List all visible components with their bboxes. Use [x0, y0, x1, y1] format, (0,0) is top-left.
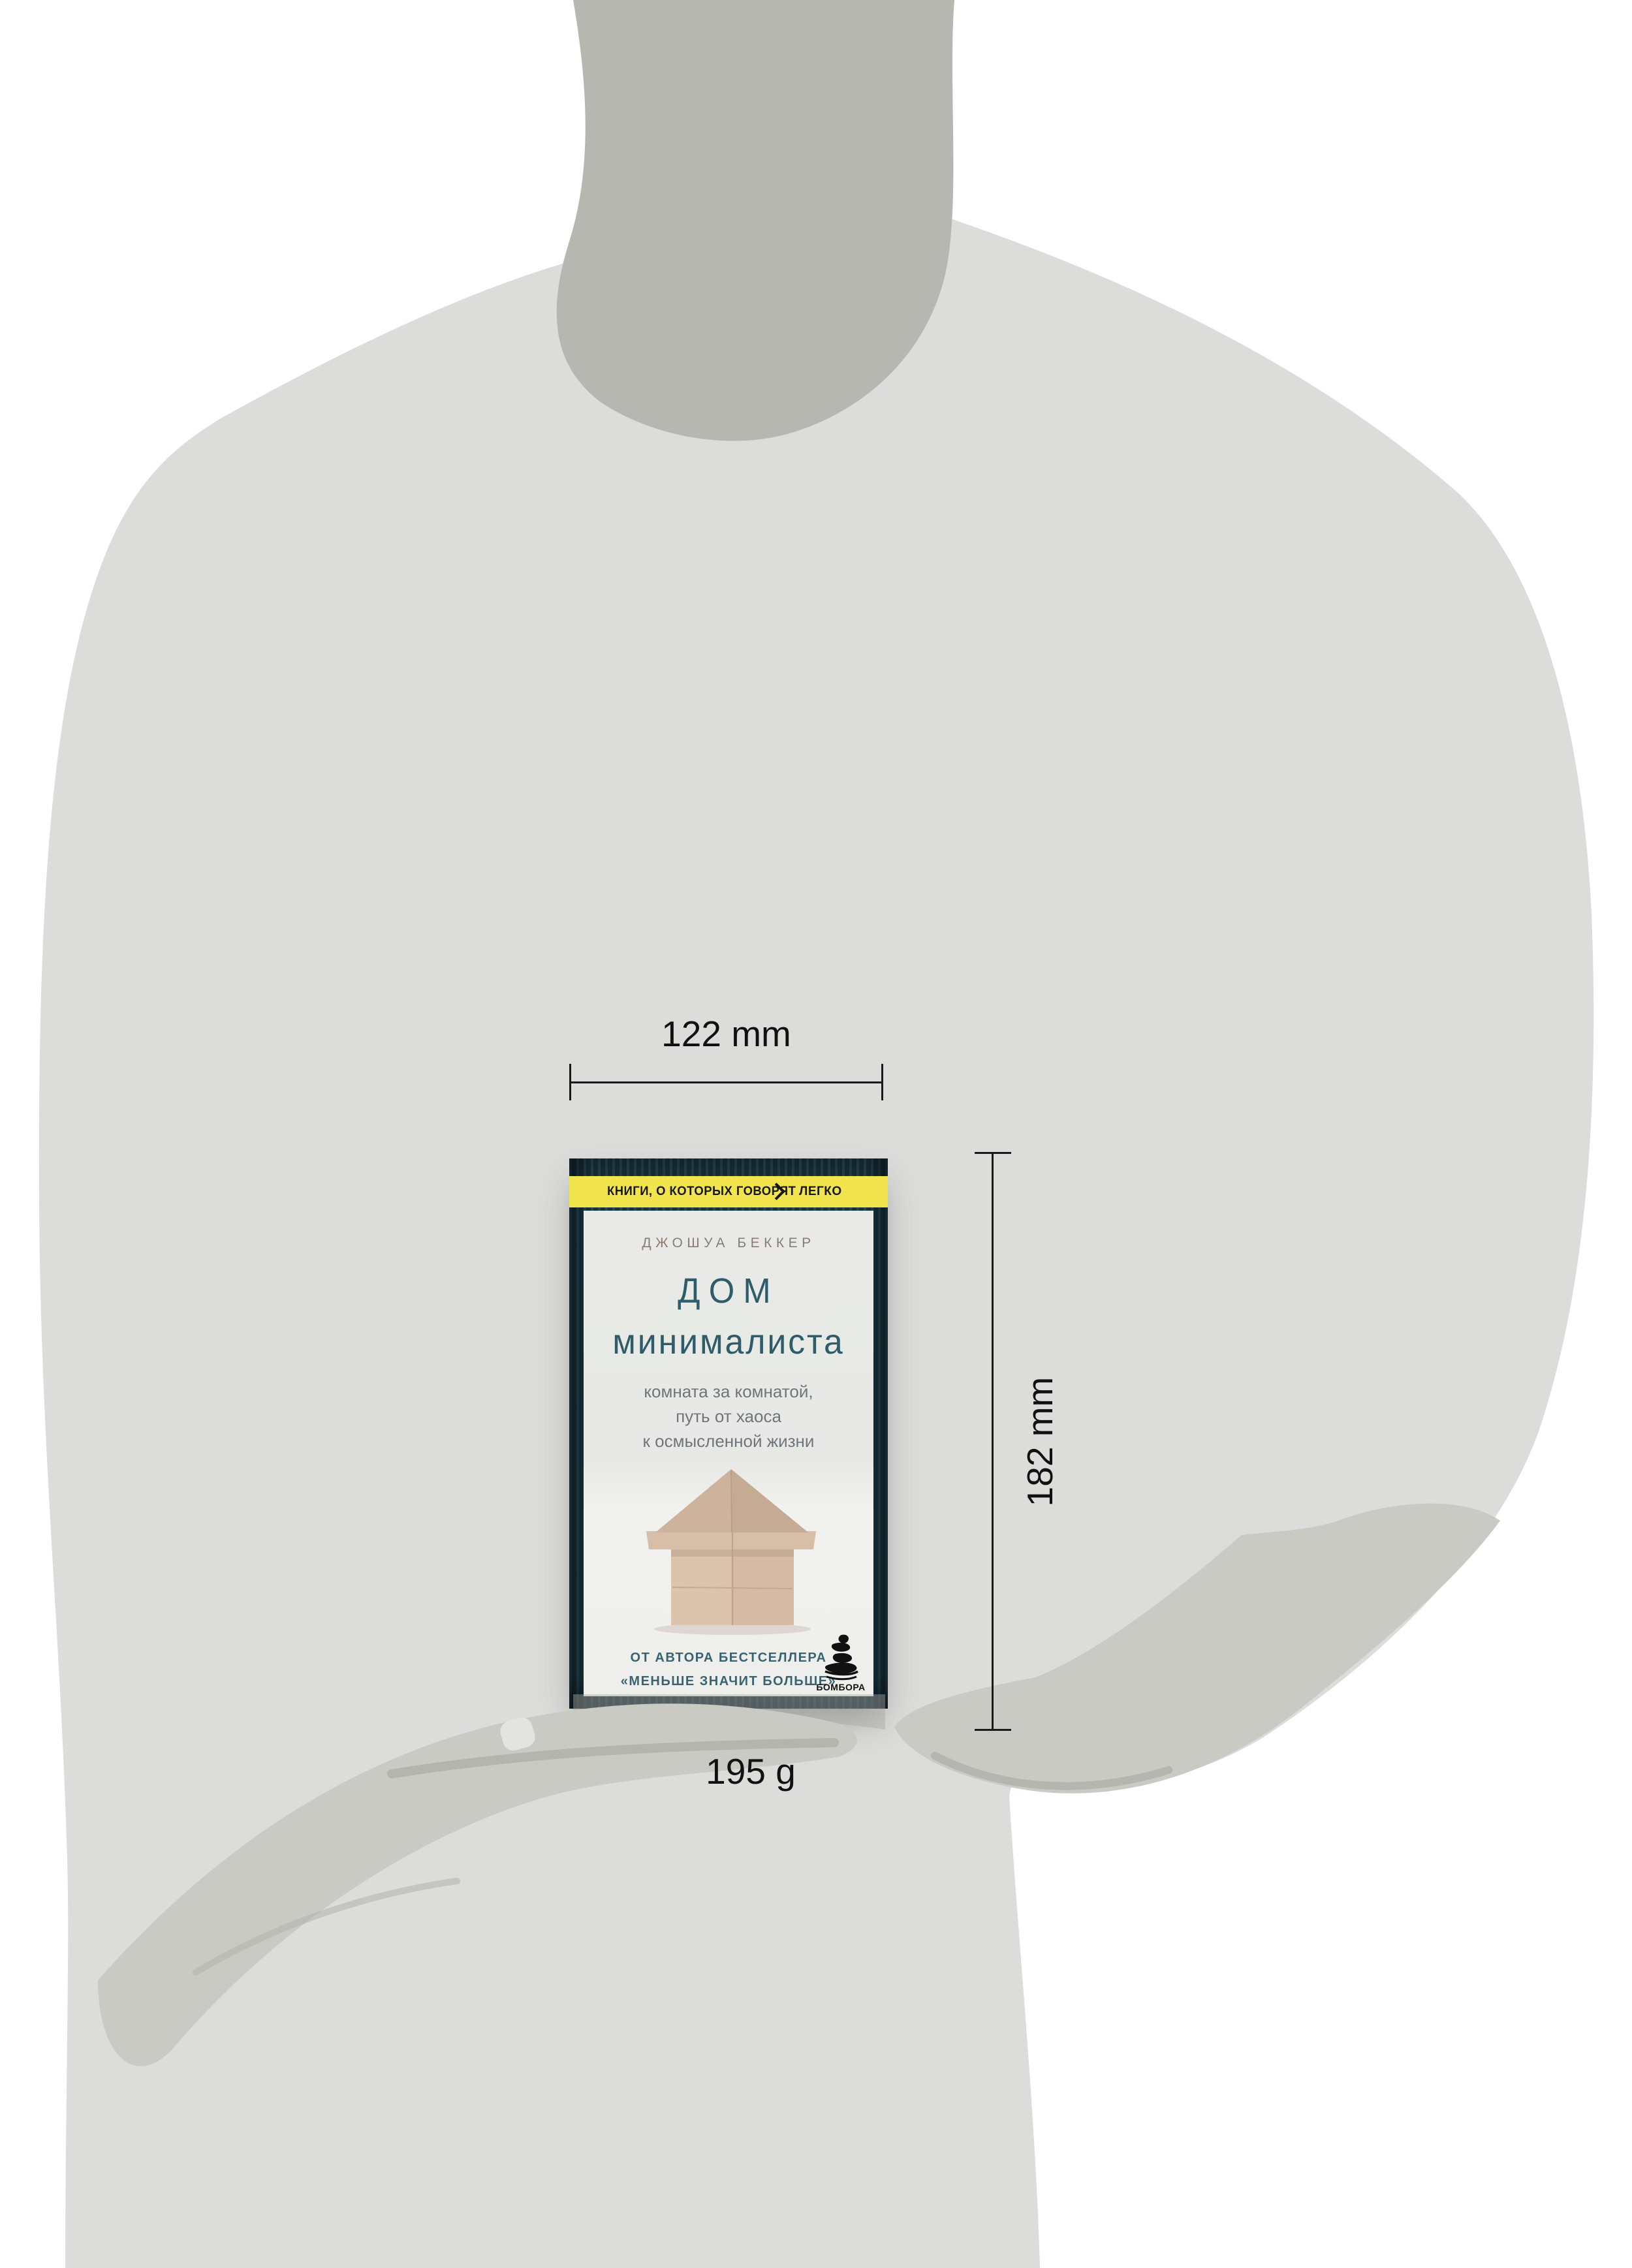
eave-shadow — [671, 1549, 794, 1557]
roof-seam — [731, 1470, 732, 1532]
house-roof-right — [731, 1469, 808, 1532]
width-dimension-label: 122 mm — [569, 1013, 883, 1055]
bombora-cairn-icon — [811, 1634, 871, 1681]
height-dimension-label: 182 mm — [1019, 1376, 1061, 1506]
height-dimension: 182 mm — [975, 1152, 1011, 1731]
wooden-block-house-illustration — [584, 1211, 873, 1696]
cover-inner-panel: ДЖОШУА БЕККЕР ДОМ минималиста комната за… — [584, 1211, 873, 1696]
cover-top-banner: КНИГИ, О КОТОРЫХ ГОВОРЯТ ЛЕГКО — [569, 1176, 888, 1207]
width-dimension: 122 mm — [569, 1064, 883, 1100]
width-dimension-line — [569, 1081, 883, 1083]
banner-tag-label: ЛЕГКО — [799, 1185, 842, 1199]
height-dimension-line — [992, 1152, 994, 1731]
mannequin-silhouette — [0, 0, 1632, 2268]
publisher-name: БОМБОРА — [811, 1682, 871, 1692]
width-tick-left — [569, 1064, 571, 1100]
height-tick-bottom — [975, 1729, 1011, 1731]
product-photo: КНИГИ, О КОТОРЫХ ГОВОРЯТ ЛЕГКО ДЖОШУА БЕ… — [0, 0, 1632, 2268]
height-tick-top — [975, 1152, 1011, 1154]
house-block — [732, 1549, 794, 1625]
book-cover: КНИГИ, О КОТОРЫХ ГОВОРЯТ ЛЕГКО ДЖОШУА БЕ… — [569, 1158, 888, 1709]
width-tick-right — [881, 1064, 883, 1100]
house-eaves — [646, 1531, 816, 1549]
weight-label: 195 g — [653, 1750, 849, 1792]
